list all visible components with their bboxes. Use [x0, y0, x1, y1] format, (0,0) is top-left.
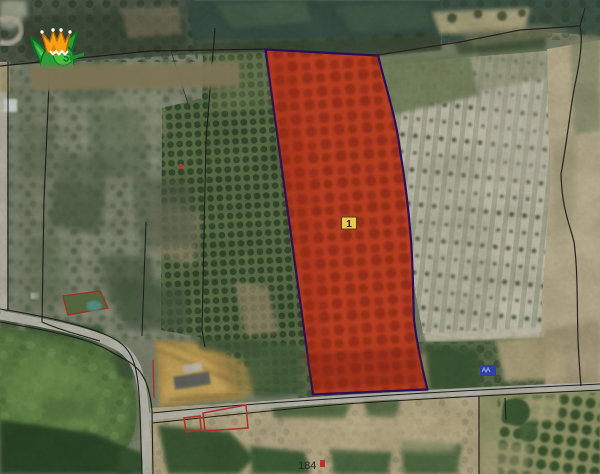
svg-text:184: 184 — [298, 460, 316, 472]
svg-text:1: 1 — [346, 218, 352, 230]
